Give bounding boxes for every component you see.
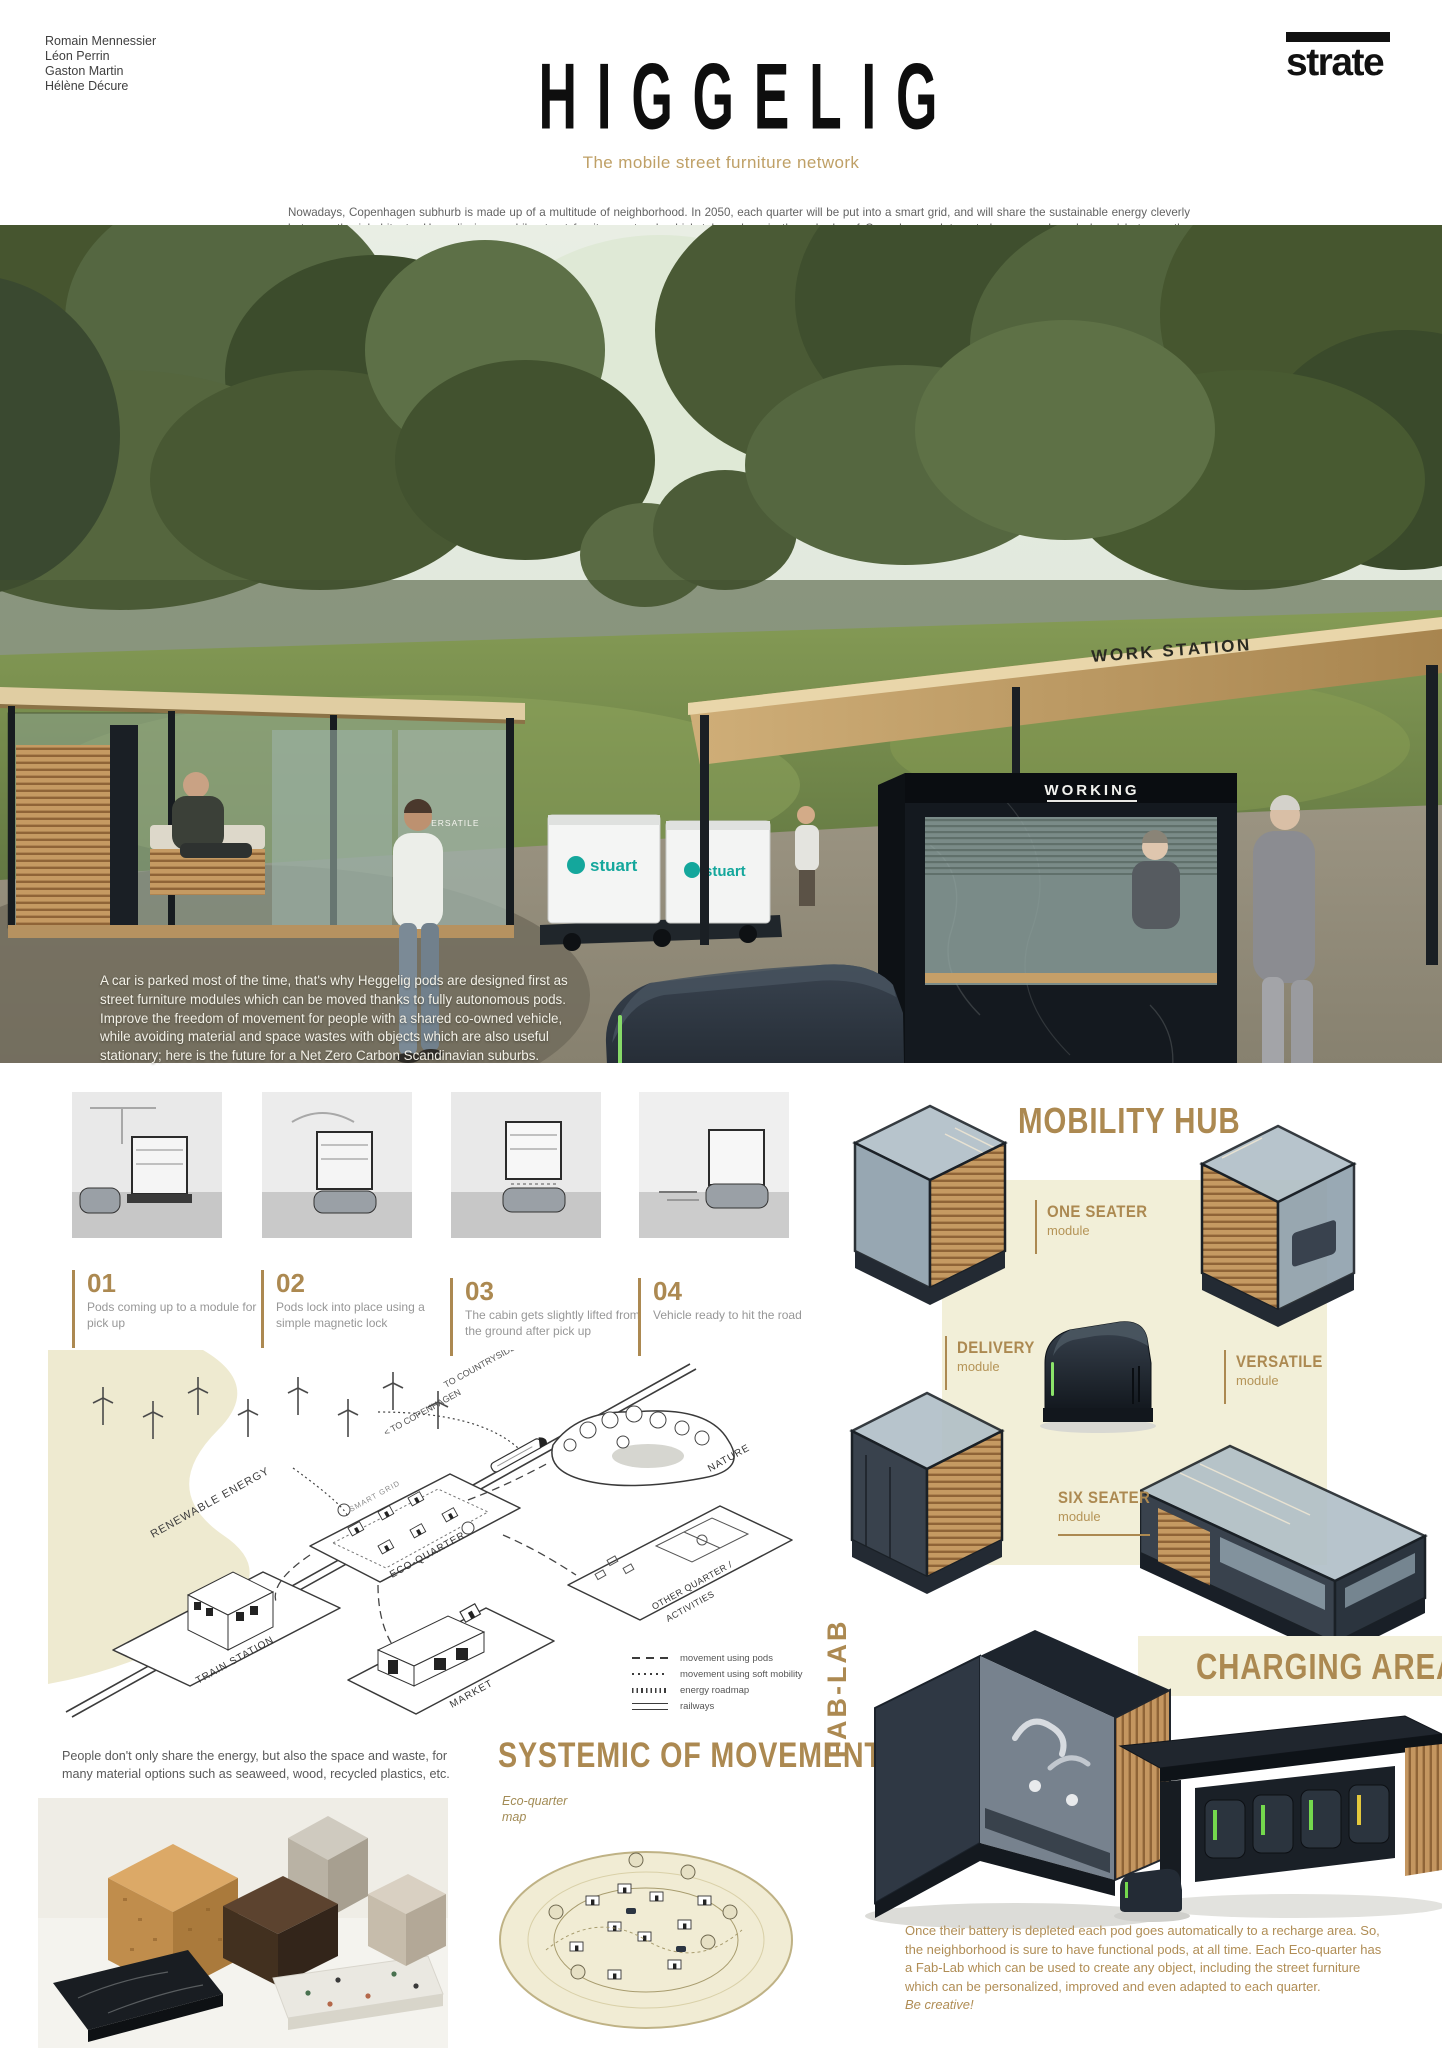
materials-photo bbox=[38, 1798, 448, 2048]
nature-node bbox=[552, 1406, 734, 1486]
diagram-legend: movement using pods movement using soft … bbox=[632, 1650, 807, 1714]
legend-label: movement using soft mobility bbox=[680, 1669, 803, 1680]
legend-row: movement using soft mobility bbox=[632, 1666, 807, 1682]
diagram-label-to-countryside: TO COUNTRYSIDE > bbox=[442, 1350, 524, 1390]
module-label-one-seater: ONE SEATER module bbox=[1035, 1200, 1161, 1254]
charging-scene bbox=[865, 1618, 1442, 1938]
step-2: 02 Pods lock into place using a simple m… bbox=[261, 1270, 448, 1348]
module-name: SIX SEATER bbox=[1058, 1488, 1139, 1508]
module-type: module bbox=[1236, 1373, 1335, 1388]
legend-label: movement using pods bbox=[680, 1653, 773, 1664]
market-node bbox=[348, 1604, 554, 1714]
module-versatile-render bbox=[1192, 1118, 1364, 1330]
charging-caption-text: Once their battery is depleted each pod … bbox=[905, 1923, 1381, 1994]
tree-canopy bbox=[0, 225, 1442, 665]
strate-logo-word: strate bbox=[1286, 45, 1390, 81]
step-thumbnail-1 bbox=[72, 1092, 222, 1238]
step-thumbnail-3-art bbox=[451, 1092, 601, 1238]
module-label-six-seater: SIX SEATER module bbox=[1058, 1488, 1150, 1536]
legend-row: energy roadmap bbox=[632, 1682, 807, 1698]
eco-map bbox=[486, 1800, 798, 2048]
other-quarter-node bbox=[568, 1506, 792, 1620]
author-name: Romain Mennessier bbox=[45, 34, 156, 49]
module-label-versatile: VERSATILE module bbox=[1224, 1350, 1335, 1404]
authors: Romain Mennessier Léon Perrin Gaston Mar… bbox=[45, 34, 156, 94]
versatile-label: VERSATILE bbox=[424, 818, 479, 828]
working-sign: WORKING bbox=[1044, 782, 1139, 799]
fablab-cabin bbox=[875, 1630, 1170, 1918]
legend-hatch-icon bbox=[632, 1688, 668, 1693]
step-3: 03 The cabin gets slightly lifted from t… bbox=[450, 1278, 641, 1356]
step-thumbnail-2-art bbox=[262, 1092, 412, 1238]
materials-caption: People don't only share the energy, but … bbox=[62, 1748, 464, 1784]
step-4: 04 Vehicle ready to hit the road bbox=[638, 1278, 841, 1356]
charging-caption: Once their battery is depleted each pod … bbox=[905, 1922, 1383, 2015]
poster: Romain Mennessier Léon Perrin Gaston Mar… bbox=[0, 0, 1442, 2048]
page-title: HIGGELIG bbox=[310, 44, 1166, 151]
step-thumbnail-4 bbox=[639, 1092, 789, 1238]
strate-logo: strate bbox=[1286, 32, 1390, 81]
hero-caption: A car is parked most of the time, that's… bbox=[100, 972, 592, 1066]
legend-rail-icon bbox=[632, 1703, 668, 1710]
working-kiosk: WORKING bbox=[878, 773, 1237, 1063]
step-description: Pods lock into place using a simple magn… bbox=[276, 1300, 448, 1331]
stuart-logo-text: stuart bbox=[704, 863, 746, 880]
legend-row: railways bbox=[632, 1698, 807, 1714]
charging-caption-emphasis: Be creative! bbox=[905, 1997, 974, 2012]
pod-render bbox=[1025, 1308, 1170, 1436]
legend-row: movement using pods bbox=[632, 1650, 807, 1666]
charging-desk bbox=[1120, 1716, 1442, 1888]
module-name: VERSATILE bbox=[1236, 1352, 1323, 1372]
module-name: DELIVERY bbox=[957, 1338, 1035, 1358]
author-name: Hélène Décure bbox=[45, 79, 156, 94]
module-delivery-render bbox=[842, 1385, 1012, 1597]
step-thumbnail-3 bbox=[451, 1092, 601, 1238]
module-type: module bbox=[957, 1359, 1045, 1374]
author-name: Léon Perrin bbox=[45, 49, 156, 64]
step-thumbnail-4-art bbox=[639, 1092, 789, 1238]
step-number: 04 bbox=[653, 1278, 841, 1304]
module-label-delivery: DELIVERY module bbox=[945, 1336, 1045, 1390]
step-number: 01 bbox=[87, 1270, 259, 1296]
stuart-logo-text: stuart bbox=[590, 856, 638, 875]
step-number: 03 bbox=[465, 1278, 641, 1304]
step-description: Pods coming up to a module for pick up bbox=[87, 1300, 259, 1331]
module-type: module bbox=[1058, 1509, 1150, 1524]
legend-label: railways bbox=[680, 1701, 714, 1712]
author-name: Gaston Martin bbox=[45, 64, 156, 79]
legend-label: energy roadmap bbox=[680, 1685, 749, 1696]
step-thumbnail-2 bbox=[262, 1092, 412, 1238]
step-number: 02 bbox=[276, 1270, 448, 1296]
fablab-label: FAB-LAB bbox=[822, 1618, 853, 1758]
module-one-seater-render bbox=[845, 1098, 1015, 1308]
legend-dash-icon bbox=[632, 1657, 668, 1659]
page-subtitle: The mobile street furniture network bbox=[0, 153, 1442, 173]
small-pod bbox=[1114, 1869, 1190, 1922]
hero-render: VERSATILE stuart stuart WORK STATION bbox=[0, 225, 1442, 1063]
module-name: ONE SEATER bbox=[1047, 1202, 1148, 1222]
left-pod-structure: VERSATILE bbox=[0, 687, 525, 938]
step-description: The cabin gets slightly lifted from the … bbox=[465, 1308, 641, 1339]
step-description: Vehicle ready to hit the road bbox=[653, 1308, 841, 1324]
step-thumbnail-1-art bbox=[72, 1092, 222, 1238]
legend-dot-icon bbox=[632, 1673, 668, 1675]
step-1: 01 Pods coming up to a module for pick u… bbox=[72, 1270, 259, 1348]
module-type: module bbox=[1047, 1223, 1161, 1238]
